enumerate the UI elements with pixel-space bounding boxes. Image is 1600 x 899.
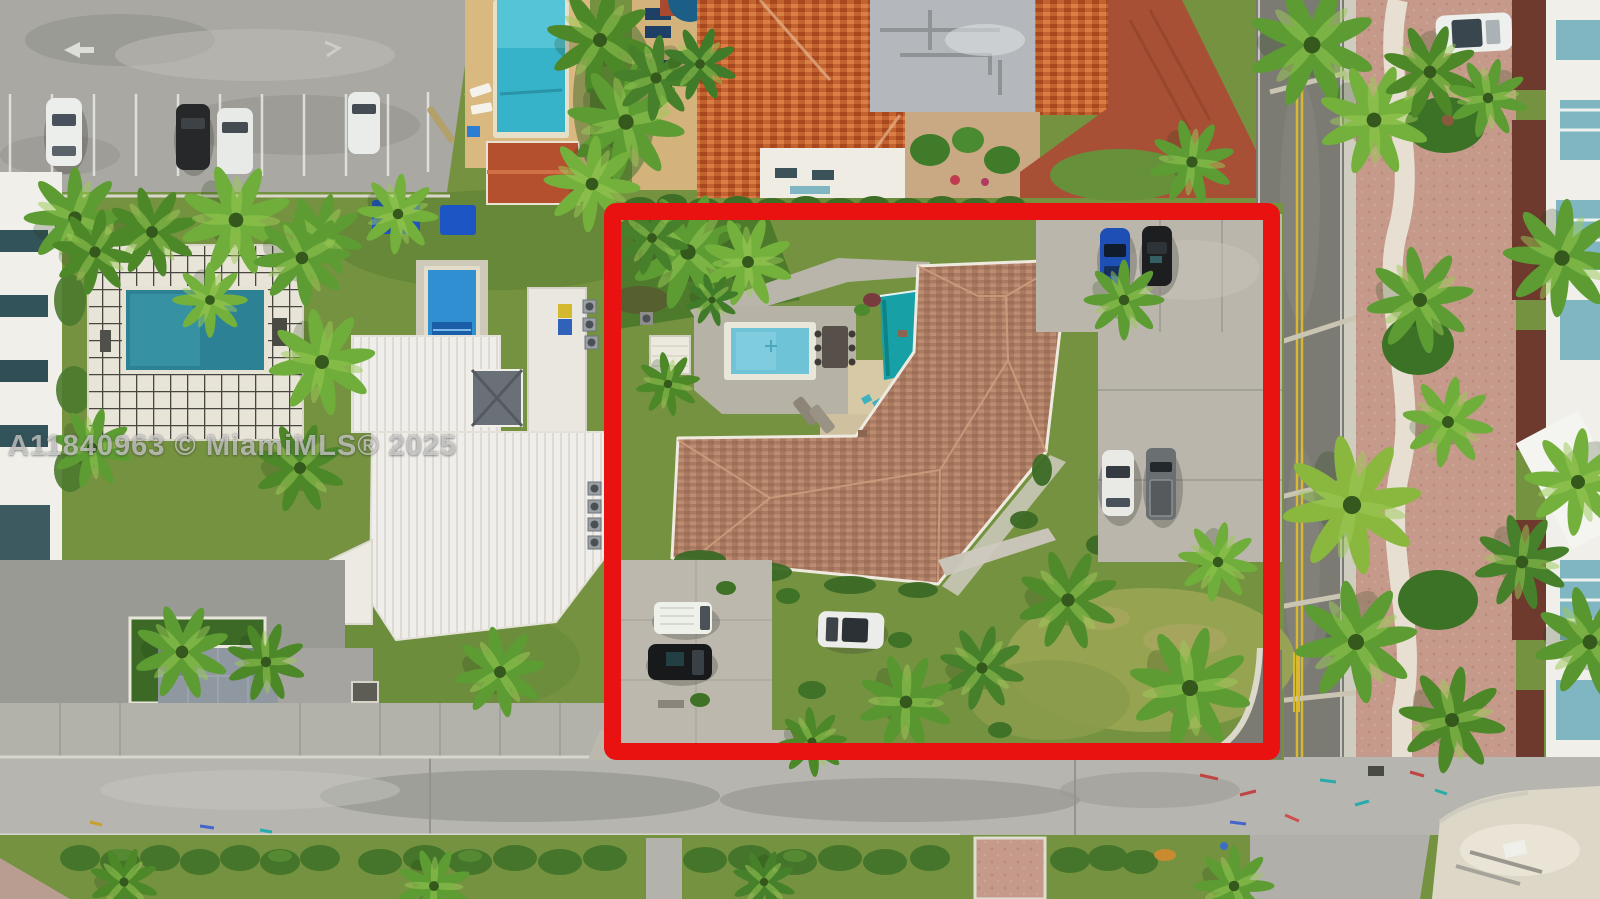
- car-dark-suv: [176, 104, 210, 170]
- aerial-photo-canvas: [0, 0, 1600, 899]
- walkway-pad: [646, 838, 682, 899]
- blue-float: [467, 126, 480, 137]
- blue-bin: [558, 319, 572, 335]
- sidewalk: [0, 703, 620, 760]
- car-white-bottom: [817, 611, 884, 649]
- yellow-bin: [558, 304, 572, 318]
- orange-mark: [1154, 849, 1176, 861]
- blue-mark: [1220, 842, 1228, 850]
- buildings-right: [1512, 0, 1600, 830]
- bench: [658, 700, 684, 708]
- car-white-suv-2: [348, 92, 380, 154]
- paver-crosswalk: [975, 838, 1045, 899]
- storm-drain: [1368, 766, 1384, 776]
- teal-sign: [790, 186, 830, 194]
- blue-awning-2: [440, 205, 476, 235]
- dining-table: [822, 326, 848, 368]
- parking-lot: [0, 0, 480, 196]
- street-horizontal: [0, 757, 1600, 846]
- red-flowers: [950, 175, 960, 185]
- aerial-photo: A11840963 © MiamiMLS® 2025: [0, 0, 1600, 899]
- car-white-suv: [217, 108, 253, 174]
- utility-box: [352, 682, 378, 702]
